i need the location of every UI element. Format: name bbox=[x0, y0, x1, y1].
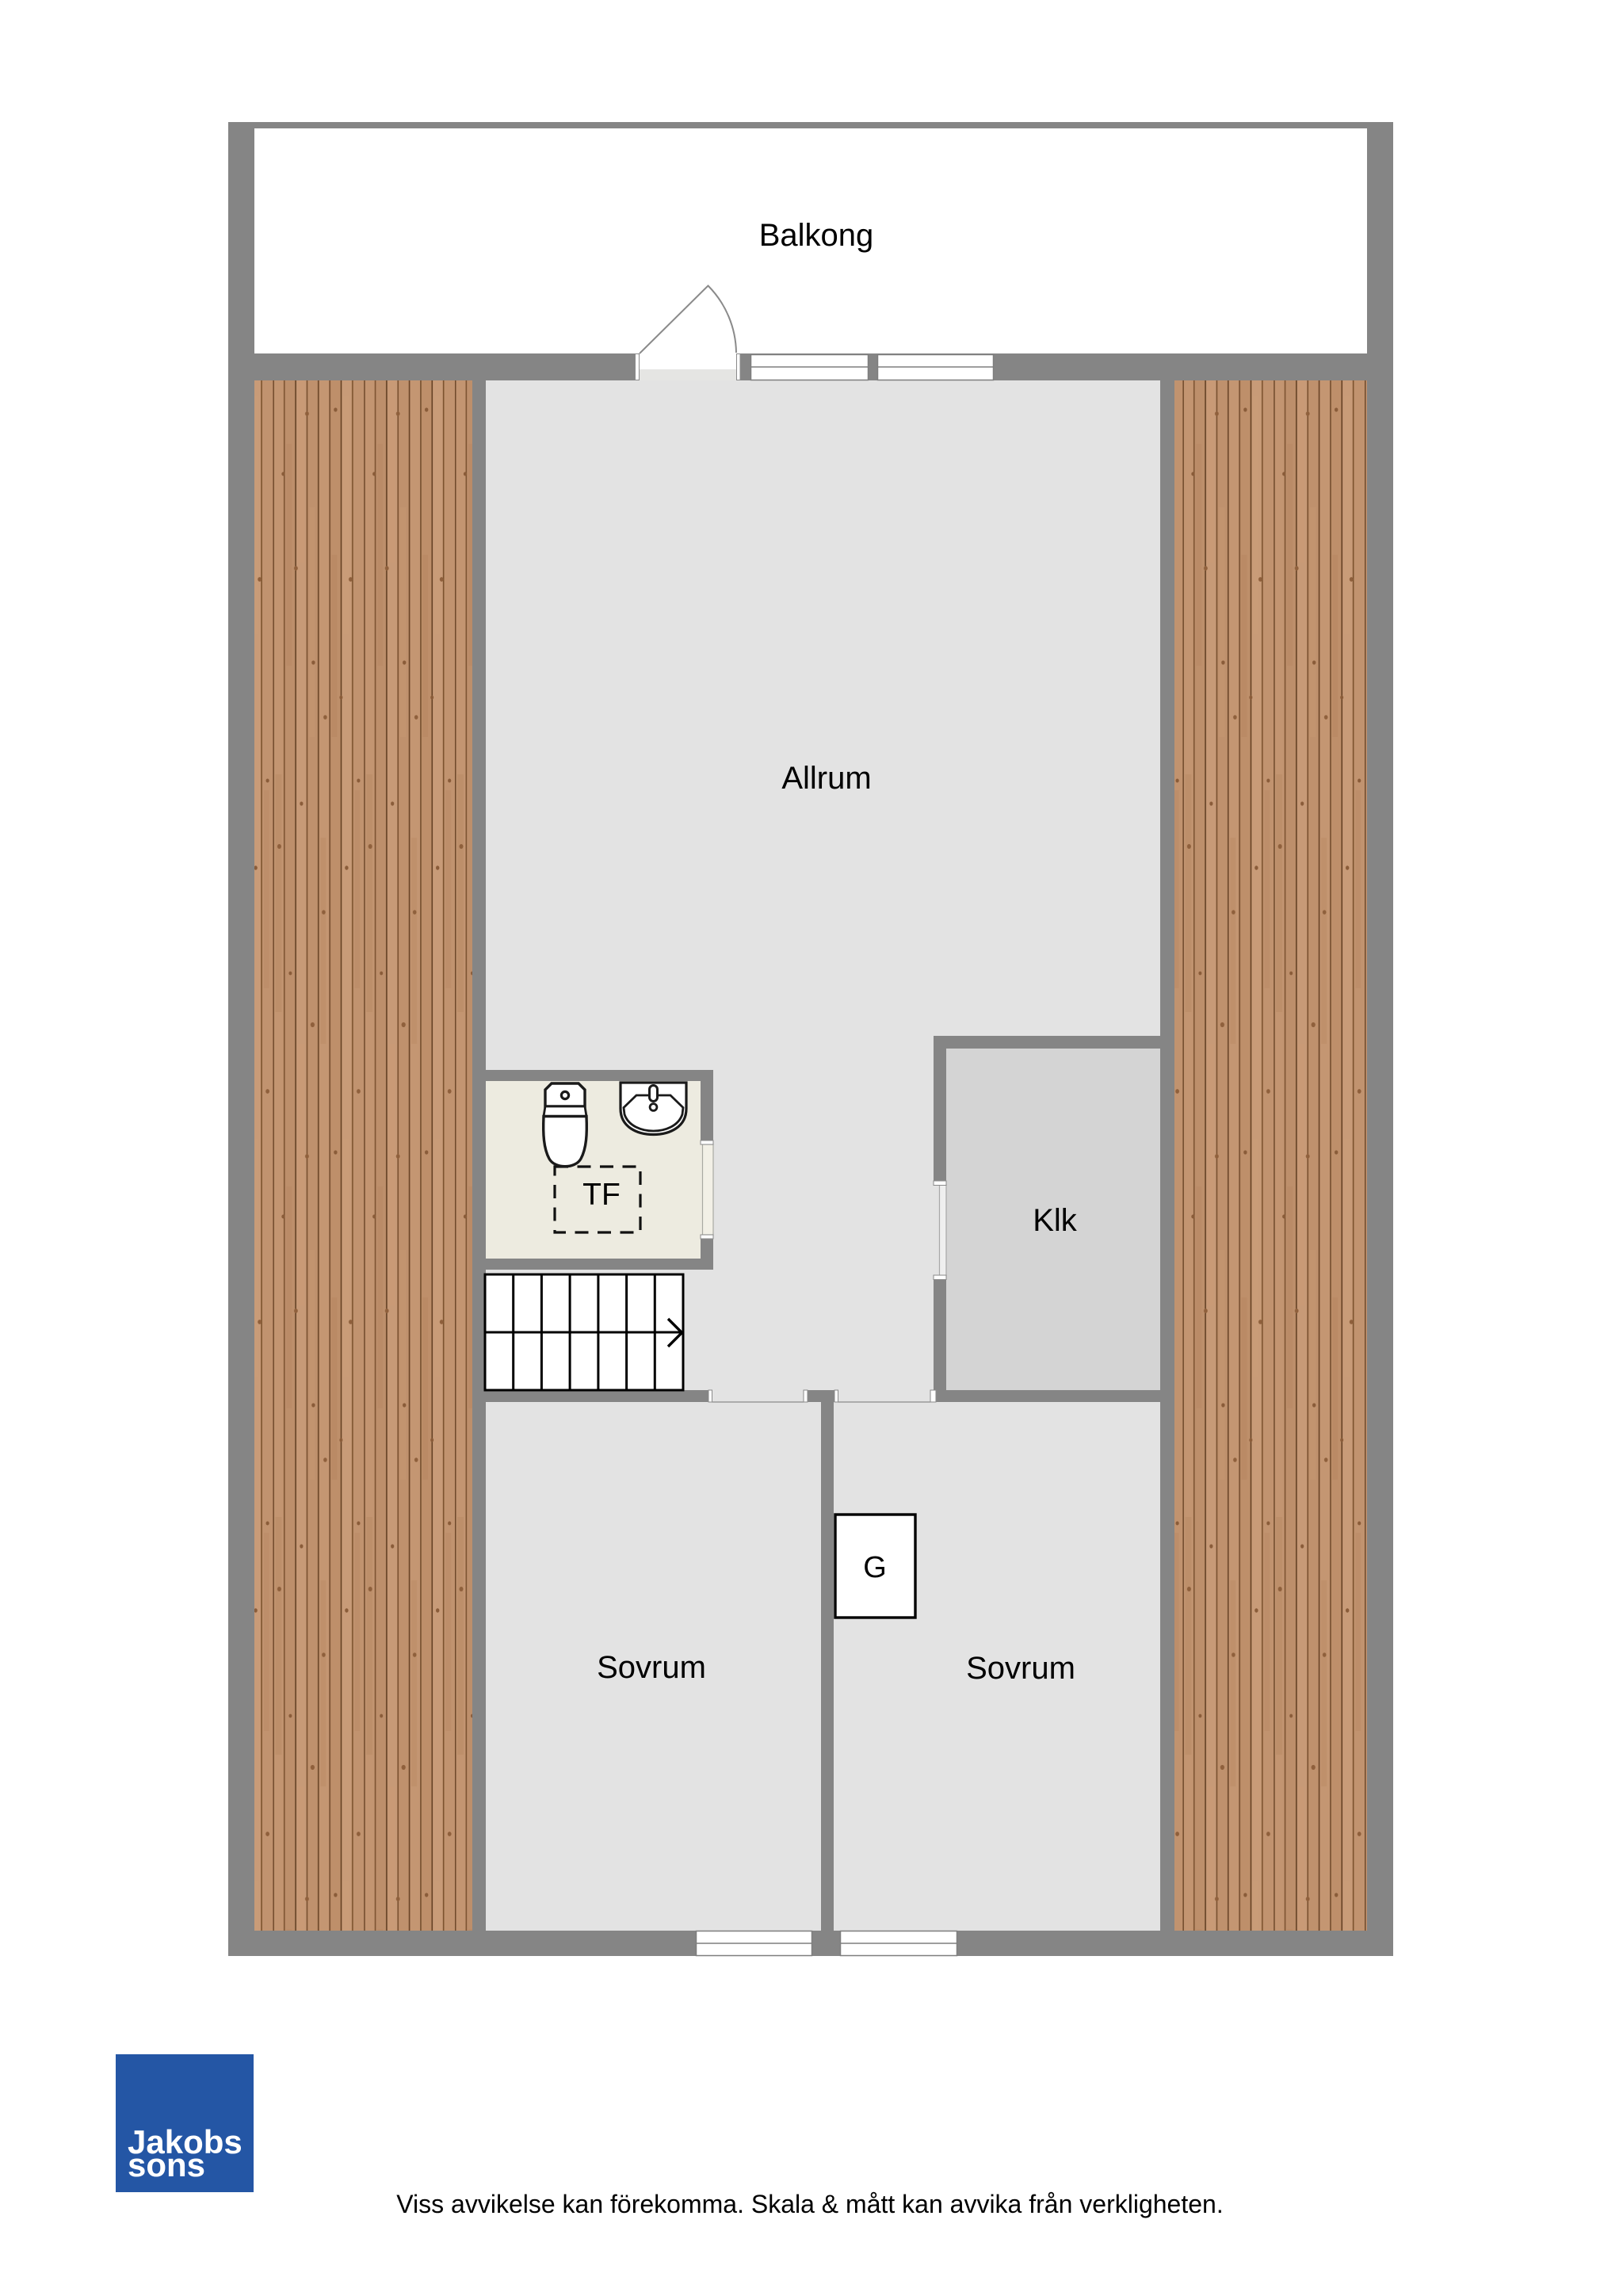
svg-text:Viss avvikelse kan förekomma.: Viss avvikelse kan förekomma. Skala & må… bbox=[396, 2190, 1223, 2218]
svg-text:sons: sons bbox=[128, 2146, 205, 2183]
svg-text:TF: TF bbox=[582, 1178, 621, 1212]
svg-text:Klk: Klk bbox=[1033, 1203, 1078, 1238]
svg-text:Sovrum: Sovrum bbox=[597, 1650, 706, 1685]
svg-text:Sovrum: Sovrum bbox=[966, 1651, 1075, 1686]
svg-text:Allrum: Allrum bbox=[781, 761, 871, 796]
svg-text:G: G bbox=[863, 1551, 887, 1584]
svg-text:Balkong: Balkong bbox=[759, 218, 874, 253]
